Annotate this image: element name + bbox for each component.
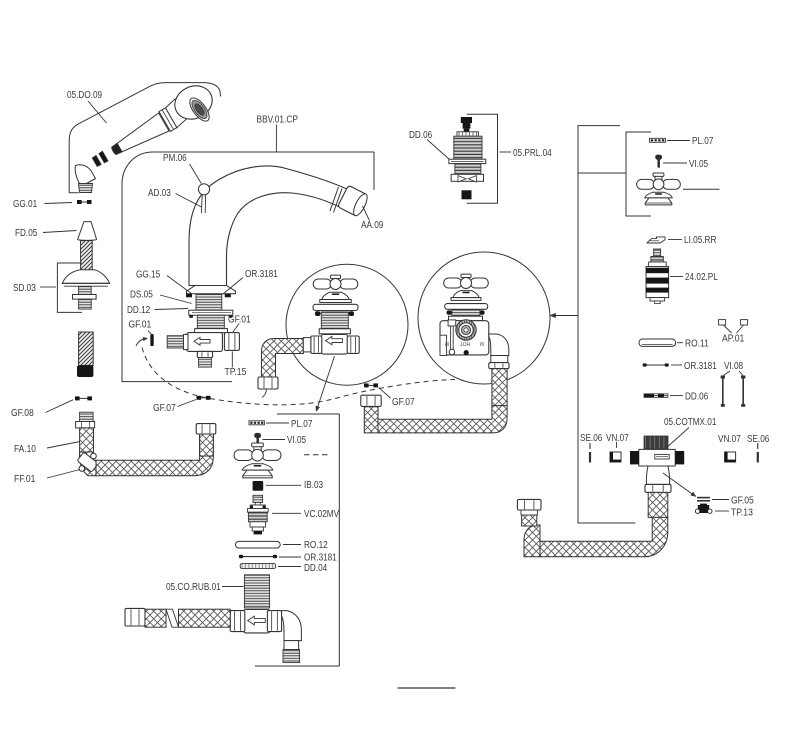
svg-text:05.DO.09: 05.DO.09 (67, 90, 102, 101)
svg-text:AA.09: AA.09 (361, 220, 384, 231)
svg-text:DD.04: DD.04 (304, 563, 328, 574)
svg-text:VI.05: VI.05 (689, 159, 708, 170)
svg-text:OR.3181: OR.3181 (684, 361, 717, 372)
svg-text:GF.01: GF.01 (228, 315, 251, 326)
svg-text:LI.05.RR: LI.05.RR (684, 235, 716, 246)
svg-text:VI.08: VI.08 (724, 361, 743, 372)
svg-text:PL.07: PL.07 (692, 136, 714, 147)
svg-text:05.CO.RUB.01: 05.CO.RUB.01 (166, 582, 221, 593)
svg-text:IB.03: IB.03 (304, 480, 323, 491)
svg-text:GF.07: GF.07 (392, 397, 415, 408)
svg-text:DD.06: DD.06 (685, 392, 709, 403)
svg-text:DD.06: DD.06 (409, 130, 433, 141)
svg-text:GF.01: GF.01 (129, 320, 152, 331)
svg-text:05.PRL.04: 05.PRL.04 (513, 148, 552, 159)
svg-text:SE.06: SE.06 (580, 433, 603, 444)
svg-text:DD.12: DD.12 (127, 305, 151, 316)
svg-text:OR.3181: OR.3181 (245, 269, 278, 280)
svg-text:24.02.PL: 24.02.PL (685, 272, 718, 283)
svg-text:OR.3181: OR.3181 (304, 553, 337, 564)
svg-text:FA.10: FA.10 (14, 444, 36, 455)
svg-text:M: M (445, 340, 449, 346)
svg-text:AP.01: AP.01 (722, 334, 745, 345)
svg-text:TP.13: TP.13 (731, 508, 753, 519)
svg-text:DS.05: DS.05 (130, 290, 153, 301)
svg-text:VN.07: VN.07 (718, 434, 741, 445)
svg-text:GG.01: GG.01 (13, 199, 38, 210)
svg-text:M: M (480, 340, 484, 346)
svg-text:VI.05: VI.05 (287, 435, 306, 446)
svg-text:GF.08: GF.08 (11, 408, 34, 419)
svg-text:FD.05: FD.05 (15, 228, 38, 239)
svg-text:BBV.01.CP: BBV.01.CP (257, 115, 299, 126)
svg-text:AD.03: AD.03 (148, 188, 171, 199)
svg-text:05.COTMX.01: 05.COTMX.01 (664, 417, 717, 428)
svg-text:VC.02MV: VC.02MV (304, 509, 339, 520)
svg-text:RO.12: RO.12 (304, 540, 328, 551)
svg-text:GG.15: GG.15 (136, 270, 161, 281)
svg-text:PL.07: PL.07 (291, 419, 313, 430)
svg-text:SD.03: SD.03 (13, 283, 36, 294)
svg-text:RO.11: RO.11 (685, 339, 709, 350)
svg-text:GF.05: GF.05 (731, 496, 754, 507)
svg-text:PM.06: PM.06 (163, 153, 187, 164)
svg-text:FF.01: FF.01 (14, 474, 36, 485)
svg-text:VN.07: VN.07 (606, 433, 629, 444)
svg-text:TP.15: TP.15 (225, 367, 247, 378)
svg-text:HOT: HOT (460, 340, 471, 346)
svg-text:GF.07: GF.07 (153, 403, 176, 414)
